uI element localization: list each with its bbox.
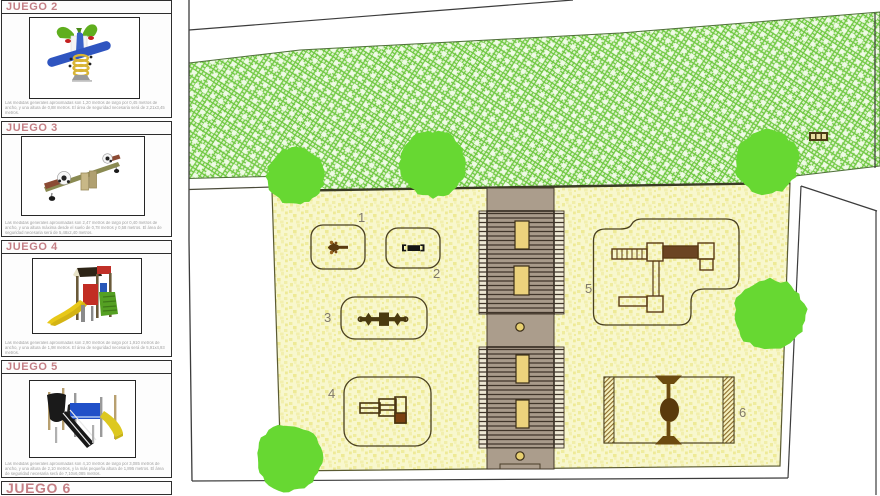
svg-text:6: 6: [739, 405, 746, 420]
svg-text:1: 1: [358, 210, 365, 225]
svg-text:2: 2: [433, 266, 440, 281]
svg-text:4: 4: [328, 386, 335, 401]
svg-text:5: 5: [585, 281, 592, 296]
svg-text:3: 3: [324, 310, 331, 325]
